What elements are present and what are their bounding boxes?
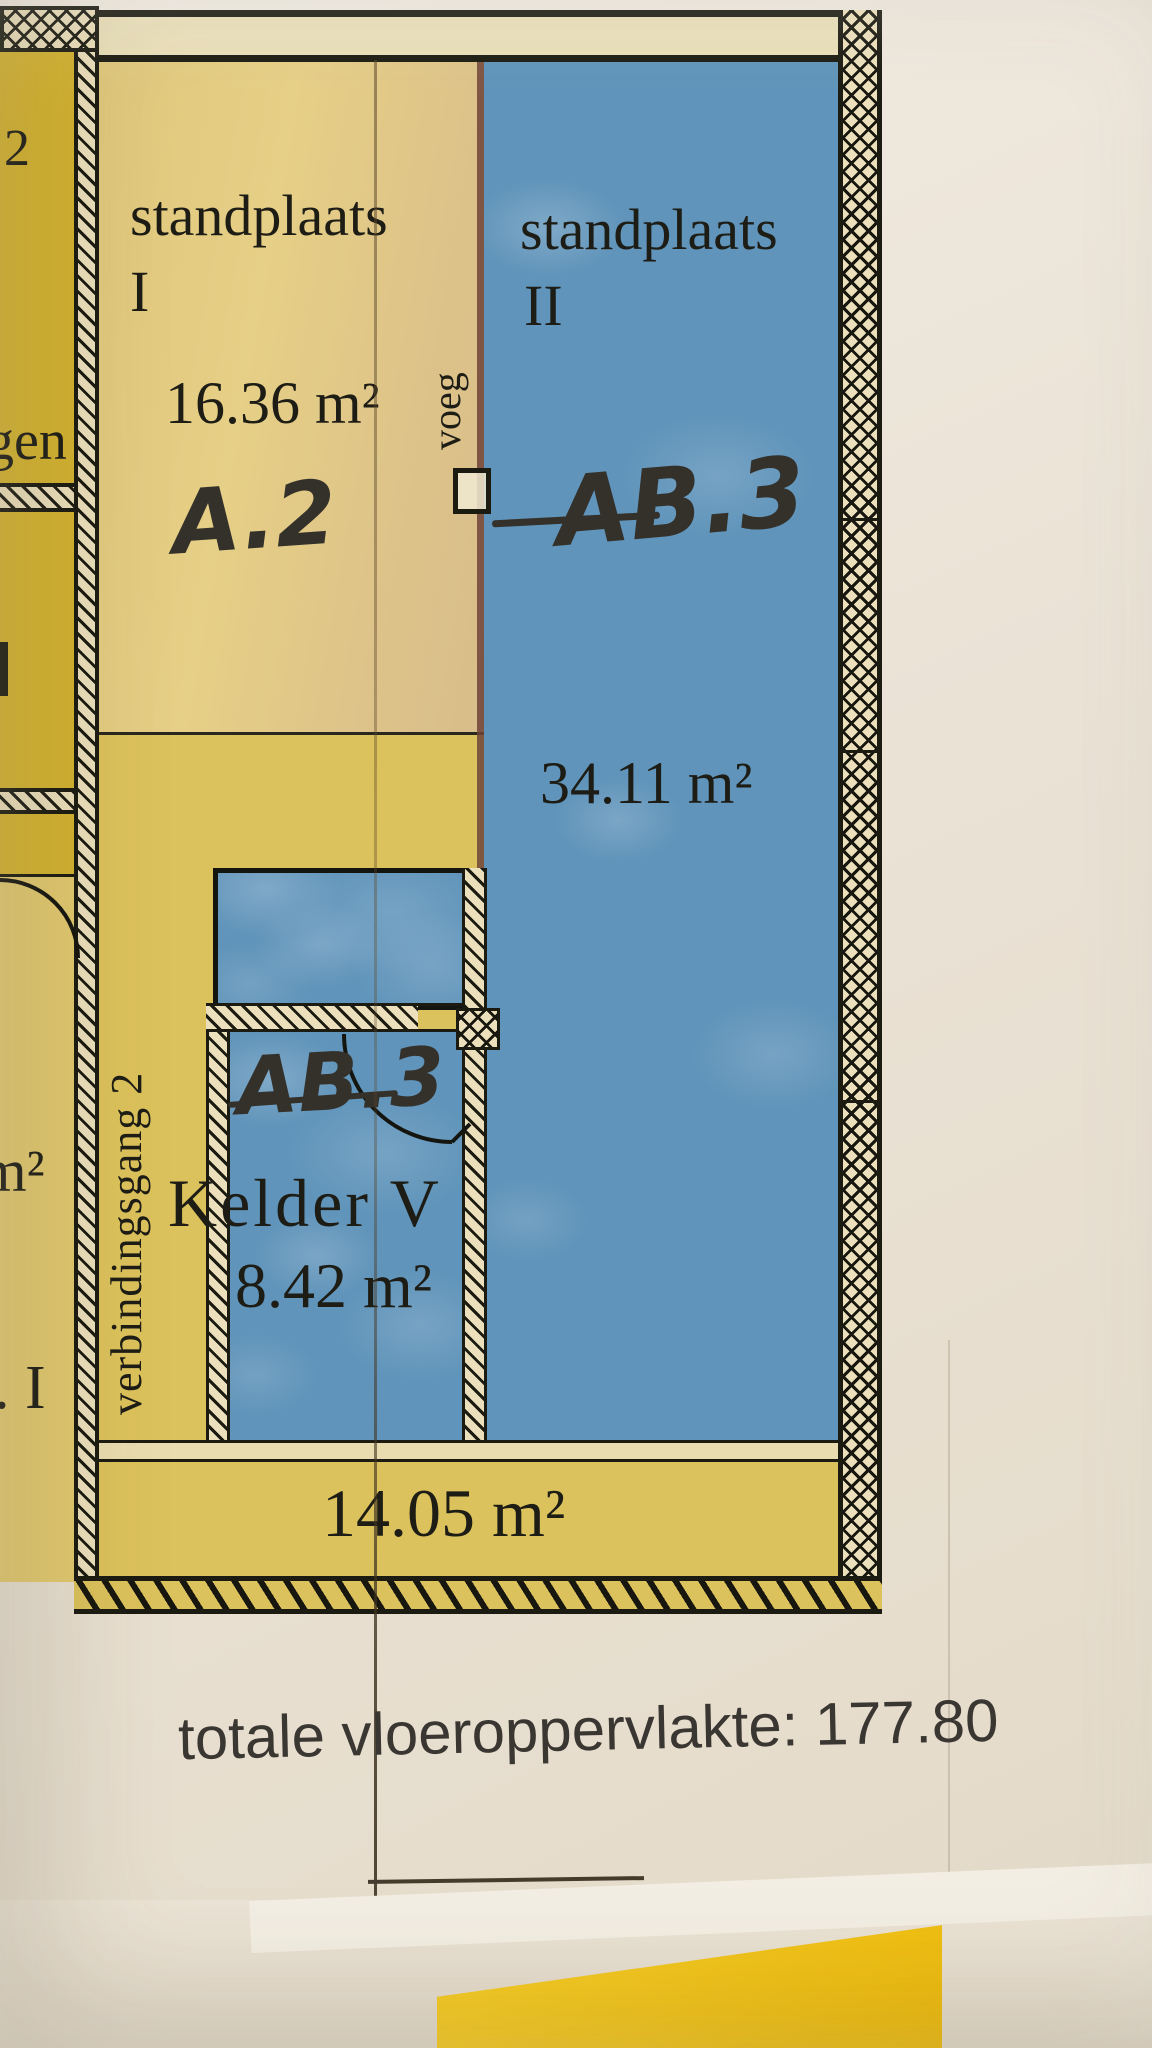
standplaats-1-label: standplaats: [130, 186, 388, 247]
fragment-numeral-i: . I: [0, 1356, 46, 1421]
paper-crease-vertical: [374, 60, 377, 1962]
standplaats-2-label: standplaats: [520, 200, 778, 261]
standplaats-2-area: 34.11 m²: [540, 752, 752, 815]
kelder-area: 8.42 m²: [235, 1252, 432, 1319]
standplaats-2-code-handwritten: AB.3: [551, 441, 810, 563]
floorplan-photo: standplaats I 16.36 m² A.2 voeg standpla…: [0, 0, 1152, 2048]
voeg-label: voeg: [426, 346, 468, 450]
corridor-label: verbindingsgang 2: [104, 985, 150, 1415]
kelder-label: Kelder V: [168, 1168, 442, 1239]
door-leaf-kelder: [452, 1124, 470, 1142]
fragment-word-gen: gen: [0, 412, 67, 471]
kelder-code-handwritten: AB.3: [234, 1035, 447, 1130]
standplaats-1-code-handwritten: A.2: [169, 466, 339, 570]
standplaats-1-area: 16.36 m²: [165, 372, 380, 435]
door-arc-left-room: [0, 880, 78, 958]
fragment-room-number: 2: [4, 122, 30, 177]
joint-square-symbol: [453, 468, 491, 514]
fragment-area-unit: m²: [0, 1140, 45, 1203]
paper-crease-right: [948, 1340, 950, 1880]
standplaats-1-numeral: I: [130, 262, 149, 323]
standplaats-2-numeral: II: [524, 276, 563, 337]
bottom-strip-area: 14.05 m²: [322, 1478, 565, 1549]
